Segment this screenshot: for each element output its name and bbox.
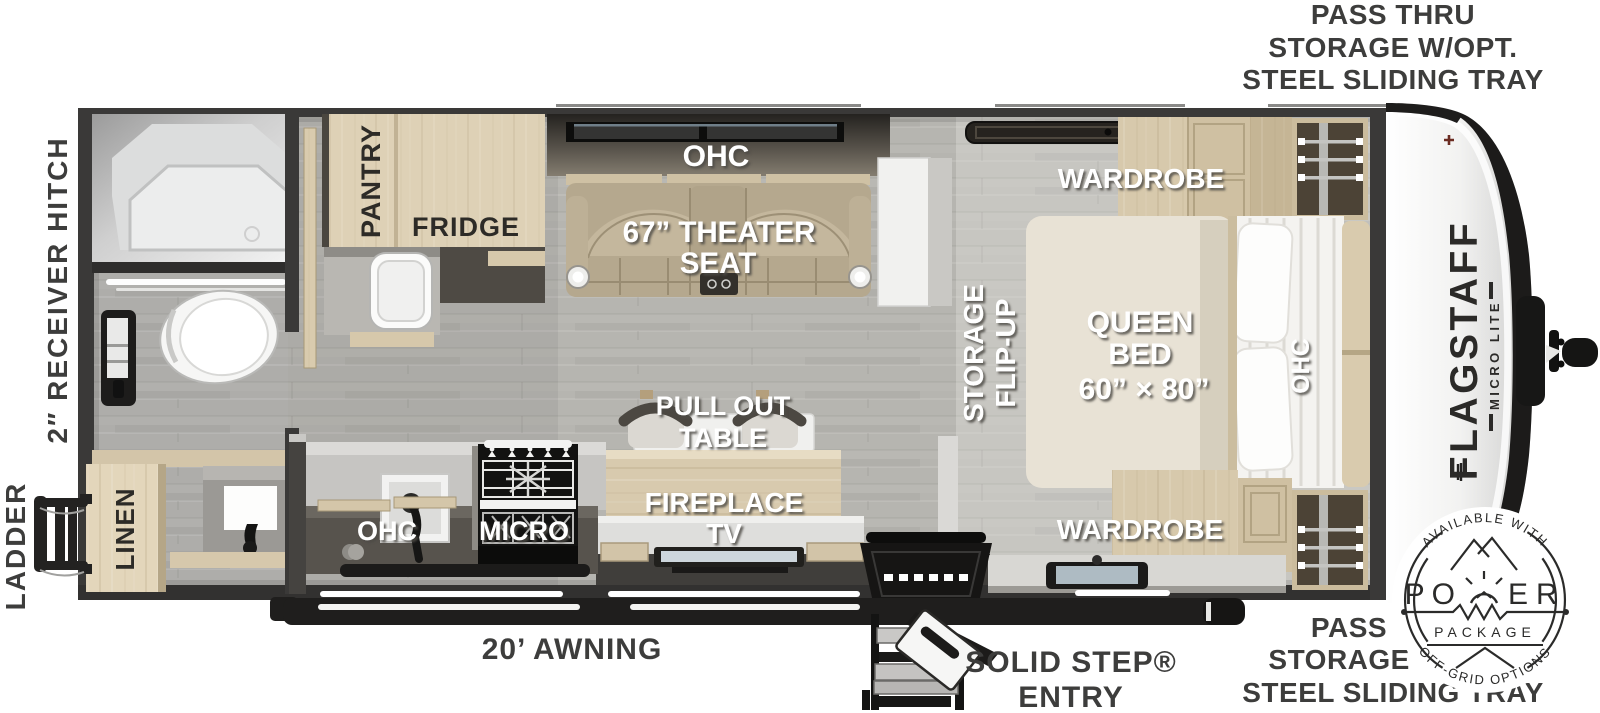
svg-text:FLIP-UP: FLIP-UP <box>990 299 1021 408</box>
svg-text:STORAGE W/OPT.: STORAGE W/OPT. <box>1268 32 1517 63</box>
svg-text:WARDROBE: WARDROBE <box>1057 514 1223 545</box>
svg-text:PO: PO <box>1405 578 1462 611</box>
svg-text:STORAGE: STORAGE <box>958 284 989 422</box>
svg-text:WARDROBE: WARDROBE <box>1058 163 1224 194</box>
svg-text:STEEL SLIDING TRAY: STEEL SLIDING TRAY <box>1242 64 1544 95</box>
svg-text:OHC: OHC <box>683 140 750 173</box>
svg-text:67” THEATER: 67” THEATER <box>623 216 816 249</box>
svg-text:TABLE: TABLE <box>679 423 767 453</box>
svg-text:PULL OUT: PULL OUT <box>656 391 791 421</box>
svg-text:FRIDGE: FRIDGE <box>412 212 520 242</box>
svg-text:ENTRY: ENTRY <box>1018 681 1124 713</box>
svg-text:FLAGSTAFF: FLAGSTAFF <box>1443 220 1486 480</box>
svg-text:MICRO: MICRO <box>479 516 569 546</box>
svg-text:TV: TV <box>706 518 742 549</box>
svg-text:BED: BED <box>1108 338 1171 371</box>
svg-text:SOLID STEP®: SOLID STEP® <box>965 646 1176 679</box>
svg-text:PANTRY: PANTRY <box>356 124 386 238</box>
svg-text:PACKAGE: PACKAGE <box>1434 624 1536 640</box>
svg-text:SEAT: SEAT <box>680 247 757 280</box>
svg-text:60” × 80”: 60” × 80” <box>1079 373 1210 406</box>
svg-text:QUEEN: QUEEN <box>1087 306 1194 339</box>
svg-text:LINEN: LINEN <box>110 488 140 571</box>
svg-text:PASS THRU: PASS THRU <box>1311 0 1475 30</box>
svg-text:OHC: OHC <box>1287 338 1315 394</box>
svg-text:MICRO LITE: MICRO LITE <box>1487 300 1502 410</box>
svg-text:ER: ER <box>1508 578 1566 611</box>
svg-text:LADDER: LADDER <box>0 482 31 611</box>
svg-text:20’ AWNING: 20’ AWNING <box>482 633 663 666</box>
svg-text:FIREPLACE: FIREPLACE <box>645 487 804 518</box>
svg-text:OHC: OHC <box>357 516 417 546</box>
svg-text:2″ RECEIVER HITCH: 2″ RECEIVER HITCH <box>42 136 73 443</box>
